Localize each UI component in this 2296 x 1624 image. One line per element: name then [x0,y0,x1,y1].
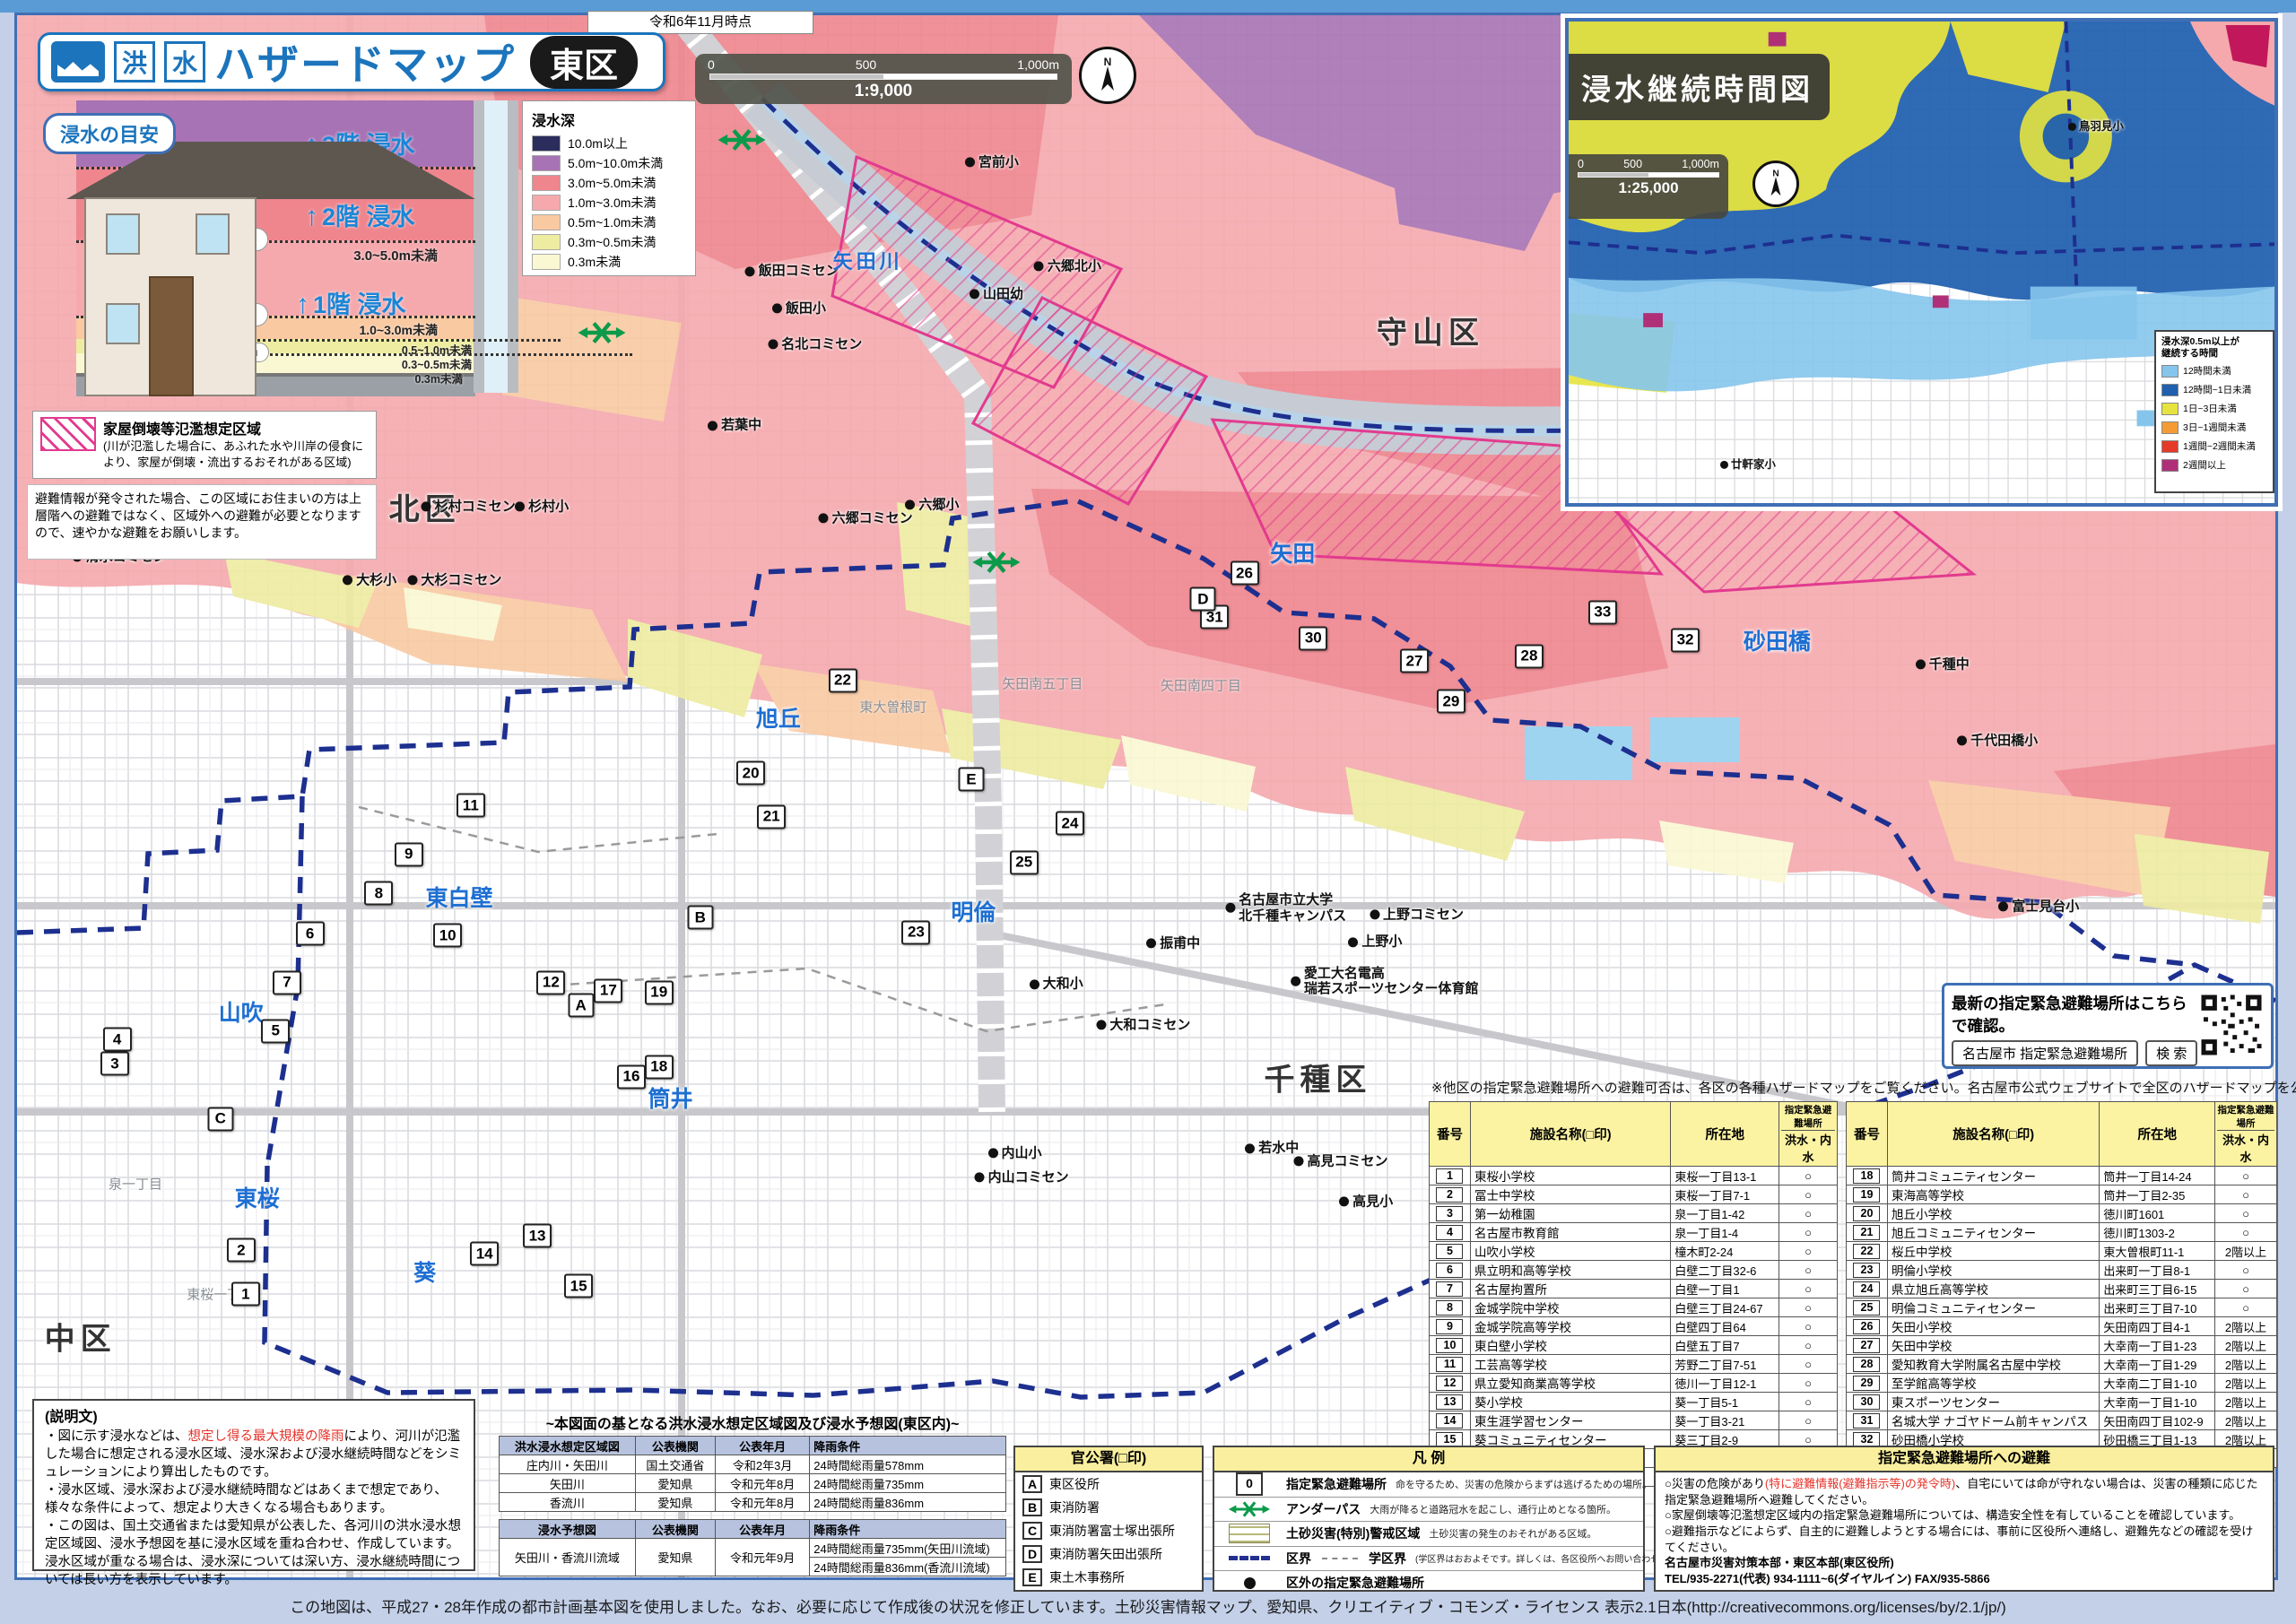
inset-compass-icon: N [1752,161,1799,207]
table-row: 24県立旭丘高等学校出来町三丁目6-15○ [1847,1280,2277,1298]
table-row: 6県立明和高等学校白壁二丁目32-6○ [1430,1261,1838,1280]
description-title: (説明文) [45,1408,463,1428]
legend-label: 5.0m~10.0m未満 [568,154,663,172]
shelter-table-right-body: 18筒井コミュニティセンター筒井一丁目14-24○19東海高等学校筒井一丁目2-… [1847,1167,2277,1468]
legend-item: 1日~3日未満 [2161,399,2267,418]
table-row: 5山吹小学校橦木町2-24○ [1430,1242,1838,1261]
qr-text: 最新の指定緊急避難場所はこちらで確認。 [1952,992,2196,1037]
inset-scale-line [1578,172,1719,178]
office-name: 東区役所 [1049,1475,1100,1493]
legend-swatch [2161,421,2179,434]
legend-swatch [2161,459,2179,472]
office-letter: B [1022,1498,1042,1516]
search-keyword-box: 名古屋市 指定緊急避難場所 [1952,1040,2138,1066]
facility-label: 鳥羽見小 [2068,120,2124,133]
table-row: 29至学館高等学校大幸南二丁目1-102階以上 [1847,1374,2277,1393]
legend-item: 10.0m以上 [532,134,686,153]
school-boundary-icon [1322,1558,1358,1559]
legend-swatch [2161,440,2179,453]
legend-swatch [2161,403,2179,415]
qr-code[interactable] [2199,993,2264,1057]
compass-icon: N [1079,47,1136,104]
legend-label: 3.0m~5.0m未満 [568,174,656,192]
table-note: ※他区の指定緊急避難場所への避難可否は、各区の各種ハザードマップをご覧ください。… [1431,1078,2279,1097]
inset-scale-ratio: 1:25,000 [1578,179,1719,197]
hatch-body: (川が氾濫した場合に、あふれた水や川岸の侵食により、家屋が倒壊・流出するおそれが… [103,439,363,469]
office-row: E東土木事務所 [1015,1566,1202,1589]
table-row: 19東海高等学校筒井一丁目2-35○ [1847,1185,2277,1204]
title-kanji-sui: 水 [164,41,205,83]
search-button[interactable]: 検 索 [2145,1040,2197,1066]
scale-zero: 0 [708,57,715,72]
offices-header: 官公署(□印) [1015,1447,1202,1472]
source-table-2: 浸水予想図 公表機関 公表年月 降雨条件 矢田川・香流川流域愛知県令和元年9月2… [499,1519,1006,1576]
facility-dot-icon [2068,123,2076,131]
office-name: 東消防署 [1049,1498,1100,1516]
legend-label: 1.0m~3.0m未満 [568,194,656,212]
source-tables: ~本図面の基となる洪水浸水想定区域図及び浸水予想図(東区内)~ 洪水浸水想定区域… [499,1411,1006,1584]
legend-label: 0.3m未満 [568,253,621,271]
shelter-table-left: 番号 施設名称(□印) 所在地 指定緊急避難場所洪水・内水 1東桜小学校東桜一丁… [1429,1101,1838,1487]
footer-credit: この地図は、平成27・28年作成の都市計画基本図を使用しました。なお、必要に応じ… [0,1594,2296,1617]
facility-label: 廿軒家小 [1720,458,1776,471]
office-letter: C [1022,1522,1042,1540]
inset-scale-mid: 500 [1623,158,1642,170]
office-row: C東消防署富士塚出張所 [1015,1519,1202,1542]
table-row: 23明倫小学校出来町一丁目8-1○ [1847,1261,2277,1280]
description-b1: ・図に示す浸水などは、想定し得る最大規模の降雨により、河川が氾濫した場合に想定さ… [45,1428,463,1481]
outside-shelter-dot-icon [1244,1577,1256,1589]
col-no: 番号 [1847,1102,1888,1167]
table-row: 26矢田小学校矢田南四丁目4-12階以上 [1847,1317,2277,1336]
scale-mid: 500 [856,57,876,72]
table-row: 30東スポーツセンター大幸南一丁目1-102階以上 [1847,1393,2277,1411]
evacuation-box: 指定緊急避難場所への避難 ○災害の危険があり(特に避難情報(避難指示等)の発令時… [1654,1446,2274,1592]
source-table-1: 洪水浸水想定区域図 公表機関 公表年月 降雨条件 庄内川・矢田川国土交通省令和2… [499,1436,1006,1512]
table-row: 31名城大学 ナゴヤドーム前キャンパス矢田南四丁目102-92階以上 [1847,1411,2277,1430]
shelter-table-right: 番号 施設名称(□印) 所在地 指定緊急避難場所洪水・内水 18筒井コミュニティ… [1846,1101,2277,1468]
office-letter: E [1022,1568,1042,1586]
shelter-table-left-body: 1東桜小学校東桜一丁目13-1○2冨士中学校東桜一丁目7-1○3第一幼稚園泉一丁… [1430,1167,1838,1487]
col-addr: 所在地 [1671,1102,1779,1167]
legend-item: 0.3m~0.5m未満 [532,232,686,252]
legend-item: 2週間以上 [2161,456,2267,474]
house-collapse-note: 家屋倒壊等氾濫想定区域 (川が氾濫した場合に、あふれた水や川岸の侵食により、家屋… [32,411,377,479]
floor-1: ↑1階 浸水 [296,285,406,320]
table-row: 21旭丘コミュニティセンター徳川町1303-2○ [1847,1223,2277,1242]
legend-label: 2週間以上 [2183,458,2226,472]
legend-item: 12時間未満 [2161,361,2267,380]
legend-row-landslide: 土砂災害(特別)警戒区域土砂災害の発生のおそれがある区域。 [1214,1522,1643,1547]
flood-logo-icon [51,41,105,83]
evacuation-l1: ○災害の危険があり(特に避難情報(避難指示等)の発令時)、自宅にいては命が守れな… [1665,1476,2264,1507]
title-banner: 洪 水 ハザードマップ 東区 [38,32,665,91]
office-letter: A [1022,1475,1042,1493]
legend-label: 1週間~2週間未満 [2183,439,2256,453]
legend-swatch [2161,384,2179,396]
legend-item: 0.5m~1.0m未満 [532,213,686,232]
legend-label: 12時間未満 [2183,364,2231,378]
inset-scale-end: 1,000m [1682,158,1719,170]
facility-name: 鳥羽見小 [2079,120,2124,133]
legend-swatch [532,175,561,191]
legend-item: 12時間~1日未満 [2161,380,2267,399]
table-row: 4名古屋市教育館泉一丁目1-4○ [1430,1223,1838,1242]
legend-swatch [532,214,561,230]
scale-end: 1,000m [1017,57,1059,72]
description-b3: ・この図は、国土交通省または愛知県が公表した、各河川の洪水浸水想定区域図、浸水予… [45,1517,463,1589]
legend-label: 10.0m以上 [568,135,628,152]
scale-bar-line [709,74,1057,80]
inset-title: 浸水継続時間図 [1569,54,1830,120]
facility-name: 廿軒家小 [1731,458,1776,471]
legend-label: 3日~1週間未満 [2183,421,2246,434]
contact-name: 名古屋市災害対策本部・東区本部(東区役所) [1665,1555,2264,1571]
table-row: 7名古屋拘置所白壁一丁目1○ [1430,1280,1838,1298]
ward-boundary-icon [1229,1556,1270,1560]
underpass-icon [1222,1500,1277,1518]
inset-legend: 浸水深0.5m以上が 継続する時間 12時間未満12時間~1日未満1日~3日未満… [2154,330,2274,493]
table-row: 28愛知教育大学附属名古屋中学校大幸南一丁目1-292階以上 [1847,1355,2277,1374]
offices-rows: A東区役所B東消防署C東消防署富士塚出張所D東消防署矢田出張所E東土木事務所 [1015,1472,1202,1589]
col-flood: 指定緊急避難場所洪水・内水 [1779,1102,1838,1167]
source-tables-title: ~本図面の基となる洪水浸水想定区域図及び浸水予想図(東区内)~ [499,1411,1006,1433]
legend-item: 1.0m~3.0m未満 [532,193,686,213]
label-under-03m: 0.3m未満 [415,369,464,386]
guide-title: 浸水の目安 [43,113,176,154]
legend-box: 凡 例 0 指定緊急避難場所命を守るため、災害の危険からまずは逃げるための場所。… [1213,1446,1645,1592]
inset-scale-bar: 0 500 1,000m 1:25,000 [1569,154,1728,219]
table-row: 22桜丘中学校東大曽根町11-12階以上 [1847,1242,2277,1261]
evacuation-l3: ○避難指示などによらず、自主的に避難しようとする場合には、事前に区役所へ連絡し、… [1665,1524,2264,1555]
shelter-plaque-icon: 0 [1236,1472,1263,1496]
table-row: 14東生涯学習センター葵一丁目3-21○ [1430,1411,1838,1430]
office-name: 東消防署矢田出張所 [1049,1545,1162,1563]
depth-legend: 浸水深 10.0m以上5.0m~10.0m未満3.0m~5.0m未満1.0m~3… [522,100,696,276]
table-row: 1東桜小学校東桜一丁目13-1○ [1430,1167,1838,1185]
legend-label: 0.3m~0.5m未満 [568,233,656,251]
inset-map: 鳥羽見小廿軒家小 浸水継続時間図 0 500 1,000m 1:25,000 N… [1565,18,2278,507]
floor-2: ↑2階 浸水 [305,197,415,232]
legend-row-underpass: アンダーパス大雨が降ると道路冠水を起こし、通行止めとなる箇所。 [1214,1498,1643,1523]
building-illustration [474,100,518,393]
legend-item: 1週間~2週間未満 [2161,437,2267,456]
inset-legend-items: 12時間未満12時間~1日未満1日~3日未満3日~1週間未満1週間~2週間未満2… [2161,361,2267,474]
legend-swatch [532,195,561,211]
table-row: 13葵小学校葵一丁目5-1○ [1430,1393,1838,1411]
table-row: 9金城学院高等学校白壁四丁目64○ [1430,1317,1838,1336]
office-name: 東土木事務所 [1049,1568,1125,1586]
scale-ratio: 1:9,000 [708,82,1059,101]
table-row: 20旭丘小学校徳川町1601○ [1847,1204,2277,1223]
evacuation-note: 避難情報が発令された場合、この区域にお住まいの方は上層階への避難ではなく、区域外… [27,484,377,560]
legend-swatch [2161,365,2179,378]
facility-dot-icon [1720,461,1728,469]
evacuation-l2: ○家屋倒壊等氾濫想定区域内の指定緊急避難場所については、構造安全性を有しているこ… [1665,1507,2264,1524]
landslide-swatch [1229,1524,1270,1543]
table-row: 12県立愛知商業高等学校徳川一丁目12-1○ [1430,1374,1838,1393]
table-row: 2冨士中学校東桜一丁目7-1○ [1430,1185,1838,1204]
office-row: B東消防署 [1015,1496,1202,1519]
legend-row-outside: 区外の指定緊急避難場所 [1214,1571,1643,1595]
hatch-swatch [40,417,96,451]
legend-header: 凡 例 [1214,1447,1643,1472]
table-row: 3第一幼稚園泉一丁目1-42○ [1430,1204,1838,1223]
qr-panel: 最新の指定緊急避難場所はこちらで確認。 名古屋市 指定緊急避難場所 検 索 [1942,983,2274,1069]
contact-phone: TEL/935-2271(代表) 934-1111~6(ダイヤルイン) FAX/… [1665,1571,2264,1587]
table-row: 18筒井コミュニティセンター筒井一丁目14-24○ [1847,1167,2277,1185]
legend-swatch [532,155,561,171]
hatch-title: 家屋倒壊等氾濫想定区域 [103,422,261,438]
scale-bar: 0 500 1,000m 1:9,000 [695,54,1072,104]
description-box: (説明文) ・図に示す浸水などは、想定し得る最大規模の降雨により、河川が氾濫した… [32,1399,475,1571]
col-no: 番号 [1430,1102,1471,1167]
evacuation-header: 指定緊急避難場所への避難 [1656,1447,2273,1472]
col-addr: 所在地 [2100,1102,2215,1167]
col-flood: 指定緊急避難場所洪水・内水 [2215,1102,2277,1167]
house-illustration [79,142,258,393]
svg-text:N: N [1104,56,1112,68]
table-row: 11工芸高等学校芳野二丁目7-51○ [1430,1355,1838,1374]
table-row: 27矢田中学校大幸南一丁目1-232階以上 [1847,1336,2277,1355]
col-name: 施設名称(□印) [1470,1102,1670,1167]
legend-label: 12時間~1日未満 [2183,383,2251,396]
ward-badge: 東区 [530,36,638,89]
legend-row-boundary: 区界 学区界(学区界はおおよそです。詳しくは、各区役所へお問い合わせください。) [1214,1547,1643,1572]
legend-item: 3日~1週間未満 [2161,418,2267,437]
legend-item: 5.0m~10.0m未満 [532,153,686,173]
table-row: 25明倫コミュニティセンター出来町三丁目7-10○ [1847,1298,2277,1317]
legend-label: 1日~3日未満 [2183,402,2237,415]
depth-legend-items: 10.0m以上5.0m~10.0m未満3.0m~5.0m未満1.0m~3.0m未… [532,134,686,272]
label-3-5m: 3.0~5.0m未満 [353,246,438,265]
description-b2: ・浸水区域、浸水深および浸水継続時間などはあくまで想定であり、様々な条件によって… [45,1481,463,1517]
office-row: A東区役所 [1015,1472,1202,1496]
legend-swatch [532,254,561,270]
depth-legend-title: 浸水深 [532,109,686,130]
title-kanji-kou: 洪 [114,41,155,83]
table-row: 8金城学院中学校白壁三丁目24-67○ [1430,1298,1838,1317]
offices-box: 官公署(□印) A東区役所B東消防署C東消防署富士塚出張所D東消防署矢田出張所E… [1013,1446,1204,1592]
as-of-date: 令和6年11月時点 [587,11,813,34]
legend-label: 0.5m~1.0m未満 [568,213,656,231]
col-name: 施設名称(□印) [1887,1102,2099,1167]
legend-row-shelter: 0 指定緊急避難場所命を守るため、災害の危険からまずは逃げるための場所。 [1214,1472,1643,1498]
office-row: D東消防署矢田出張所 [1015,1542,1202,1566]
legend-item: 0.3m未満 [532,252,686,272]
office-name: 東消防署富士塚出張所 [1049,1522,1175,1540]
legend-item: 3.0m~5.0m未満 [532,173,686,193]
label-1-3m: 1.0~3.0m未満 [359,321,438,339]
table-row: 10東白壁小学校白壁五丁目7○ [1430,1336,1838,1355]
legend-swatch [532,234,561,250]
inset-scale-zero: 0 [1578,158,1584,170]
page-title: ハザードマップ [214,32,516,91]
legend-swatch [532,135,561,152]
inset-legend-title: 浸水深0.5m以上が 継続する時間 [2161,336,2267,359]
top-strip [0,0,2296,13]
office-letter: D [1022,1545,1042,1563]
